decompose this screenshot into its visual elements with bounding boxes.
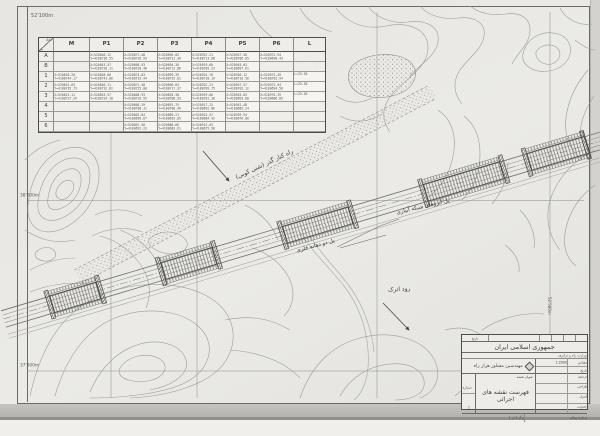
coord-cell: X=520947.58 Y=4180706.05	[226, 52, 260, 62]
stippled-pond	[348, 54, 415, 97]
coord-cell: X=520868.93 Y=4180716.55	[124, 92, 158, 102]
coord-cell: X=520815.65 Y=4180735.73	[54, 82, 90, 92]
grid-label-left-mid: 38'000m	[20, 193, 39, 198]
revision-cell	[551, 335, 563, 341]
coord-cell: X=520866.39 Y=4180708.11	[124, 102, 158, 112]
coord-cell: X=520912.03 Y=4180675.98	[192, 122, 226, 132]
coord-cell	[54, 52, 90, 62]
revision-cell	[563, 335, 575, 341]
sig-value	[536, 374, 567, 383]
coord-cell: X=520972.94 Y=4180694.50	[260, 82, 294, 92]
sig-label: طراحی	[567, 384, 587, 393]
title-block-bottom-row: شماره پیمان برگ 1 از 1	[462, 414, 587, 422]
coord-table-row: AX=520846.12 Y=4180736.55X=520871.48 Y=4…	[39, 52, 325, 62]
coord-table-row: 5X=520863.84 Y=4180699.67X=520889.21 Y=4…	[39, 112, 325, 122]
coord-cell	[260, 112, 294, 122]
coord-row-label: 1	[39, 72, 54, 82]
revision-cell	[575, 335, 587, 341]
signature-grid: ترسیم طراحی کنترل تصویب	[535, 374, 587, 413]
coord-cell: X=520924.76 Y=4180718.19	[192, 72, 226, 82]
grid-label-top-left: 52'100m	[31, 13, 53, 19]
coord-cell: X=520868.93 Y=4180720.48	[124, 62, 158, 72]
coord-row-label: 3	[39, 92, 54, 102]
coord-cell: X=520919.66 Y=4180701.30	[192, 92, 226, 102]
coord-row-label: 5	[39, 112, 54, 122]
sig-label: تصویب	[567, 404, 587, 413]
coord-table-column-header: P5	[226, 38, 260, 52]
river-flow-arrow	[383, 303, 409, 330]
coord-cell: X=520871.48 Y=4180728.93	[124, 52, 158, 62]
sheet-number-value: 1	[462, 394, 475, 413]
coord-cell: X=520871.48 Y=4180725.00	[124, 82, 158, 92]
sheet-note-cell: برگ 1 از 1	[462, 414, 524, 422]
coord-cell: X=520894.30 Y=4180712.86	[158, 62, 192, 72]
coord-table-row: 3X=520813.11 Y=4180727.29X=520843.57 Y=4…	[39, 92, 325, 102]
coord-cell	[294, 112, 325, 122]
sheet-number-label: شماره	[462, 374, 475, 394]
revision-row: تاریخ	[462, 335, 587, 342]
date-value	[536, 367, 567, 374]
coord-cell: X=520891.75 Y=4180700.49	[158, 102, 192, 112]
coord-cell: X=520848.66 Y=4180741.06	[90, 72, 124, 82]
coord-table-header-row: نقطهپلMP1P2P3P4P5P6L	[39, 38, 325, 52]
coord-row-label: 2	[39, 82, 54, 92]
coord-cell	[260, 102, 294, 112]
coord-cell: X=520843.57 Y=4180724.18	[90, 92, 124, 102]
drawing-title: فهرست نقشه های اجرائی	[478, 380, 533, 412]
coord-table-column-header: L	[294, 38, 325, 52]
coord-cell: X=520886.66 Y=4180683.61	[158, 122, 192, 132]
sig-label: کنترل	[567, 394, 587, 403]
coordinate-table: نقطهپلMP1P2P3P4P5P6LAX=520846.12 Y=41807…	[38, 37, 326, 133]
coord-cell	[260, 122, 294, 132]
coord-row-label: A	[39, 52, 54, 62]
coord-cell	[260, 62, 294, 72]
coord-cell: X=520889.21 Y=4180692.05	[158, 112, 192, 122]
coord-table-row: 4X=520866.39 Y=4180708.11X=520891.75 Y=4…	[39, 102, 325, 112]
bypass-arrow	[203, 151, 229, 181]
coord-cell: X=520975.49 Y=4180702.94	[260, 72, 294, 82]
coord-table-corner-cell: نقطهپل	[39, 38, 54, 52]
grid-label-right-vertical: 52'500m	[546, 297, 551, 315]
coord-cell: X=520846.11 Y=4180732.62	[90, 82, 124, 92]
coord-table-column-header: P6	[260, 38, 294, 52]
revision-cell	[539, 335, 551, 341]
coord-cell: L=25.36	[294, 92, 325, 102]
coord-cell: X=520947.57 Y=4180702.12	[226, 82, 260, 92]
drawing-title-label: عنوان نقشه	[503, 375, 533, 378]
title-block: تاریخ جمهوری اسلامی ایران وزارت راه و تر…	[461, 334, 588, 410]
nation-title: جمهوری اسلامی ایران	[462, 342, 587, 353]
coord-table-column-header: P2	[124, 38, 158, 52]
coord-cell: X=520899.39 Y=4180725.81	[158, 72, 192, 82]
coord-row-label: 4	[39, 102, 54, 112]
coord-cell: X=520939.94 Y=4180676.80	[226, 112, 260, 122]
coord-table-row: 6X=520861.30 Y=4180691.23X=520886.66 Y=4…	[39, 122, 325, 132]
coord-cell	[90, 102, 124, 112]
coord-table-column-header: P3	[158, 38, 192, 52]
coord-cell: X=520922.21 Y=4180709.75	[192, 82, 226, 92]
coord-cell: X=520874.03 Y=4180733.44	[124, 72, 158, 82]
scale-label: مقیاس	[567, 359, 587, 366]
river-lines	[300, 232, 374, 400]
coord-cell: X=520919.66 Y=4180705.23	[192, 62, 226, 72]
company-name: مهندسین مشاور هراز راه	[474, 363, 523, 368]
revision-description-cell	[488, 335, 539, 341]
coord-cell	[294, 62, 325, 72]
coord-row-label: 6	[39, 122, 54, 132]
sheet-number-column: شماره 1	[462, 374, 476, 413]
coord-table-row: BX=520843.57 Y=4180728.11X=520868.93 Y=4…	[39, 62, 325, 72]
coord-cell: L=25.36	[294, 82, 325, 92]
coord-cell: X=520818.20 Y=4180744.17	[54, 72, 90, 82]
coord-cell: X=520917.12 Y=4180692.86	[192, 102, 226, 112]
coord-table-row: 1X=520818.20 Y=4180744.17X=520848.66 Y=4…	[39, 72, 325, 82]
coord-cell: X=520914.57 Y=4180684.42	[192, 112, 226, 122]
coord-cell: X=520896.85 Y=4180721.30	[158, 52, 192, 62]
coord-cell: X=520942.48 Y=4180685.24	[226, 102, 260, 112]
coord-table-column-header: P4	[192, 38, 226, 52]
contract-number-cell: شماره پیمان	[524, 414, 587, 422]
coord-cell	[54, 102, 90, 112]
scanned-site-plan-sheet: { "sheet": { "paper_color": "#e9e8e4", "…	[0, 0, 600, 436]
coord-cell: X=520863.84 Y=4180699.67	[124, 112, 158, 122]
coord-cell: X=520843.57 Y=4180728.11	[90, 62, 124, 72]
coord-cell: X=520861.30 Y=4180691.23	[124, 122, 158, 132]
coord-table-column-header: P1	[90, 38, 124, 52]
coord-cell: X=520846.12 Y=4180736.55	[90, 52, 124, 62]
coord-cell: X=520813.11 Y=4180727.29	[54, 92, 90, 102]
coord-cell: X=520972.94 Y=4180698.43	[260, 52, 294, 62]
coord-cell: X=520945.03 Y=4180697.61	[226, 62, 260, 72]
coord-table-row: 2X=520815.65 Y=4180735.73X=520846.11 Y=4…	[39, 82, 325, 92]
date-label: تاریخ	[567, 367, 587, 374]
coord-cell	[54, 122, 90, 132]
sig-value	[536, 394, 567, 403]
bridge-deck-segments	[50, 136, 590, 312]
coord-cell: X=520922.21 Y=4180713.68	[192, 52, 226, 62]
coord-cell: X=520950.12 Y=4180710.56	[226, 72, 260, 82]
grid-label-left-bottom: 37'800m	[20, 363, 39, 368]
coord-cell	[54, 112, 90, 122]
coord-cell: L=25.36	[294, 72, 325, 82]
coord-row-label: B	[39, 62, 54, 72]
coord-cell	[294, 102, 325, 112]
company-logo	[525, 361, 535, 371]
coord-cell: X=520945.03 Y=4180693.68	[226, 92, 260, 102]
coord-cell: X=520970.39 Y=4180686.05	[260, 92, 294, 102]
sig-value	[536, 384, 567, 393]
sig-label: ترسیم	[567, 374, 587, 383]
coord-cell: X=520896.84 Y=4180717.37	[158, 82, 192, 92]
coord-cell	[294, 52, 325, 62]
coord-cell	[90, 112, 124, 122]
revision-date-cell: تاریخ	[462, 335, 488, 341]
coord-cell	[90, 122, 124, 132]
coord-table-column-header: M	[54, 38, 90, 52]
coord-cell: X=520894.30 Y=4180708.93	[158, 92, 192, 102]
coord-cell	[54, 62, 90, 72]
coord-cell	[294, 122, 325, 132]
sig-value	[536, 404, 567, 413]
scale-date-grid: مقیاس 1:2000 تاریخ	[535, 359, 587, 373]
scale-value: 1:2000	[536, 359, 567, 366]
coord-cell	[226, 122, 260, 132]
metal-bridge-leader-line	[340, 235, 386, 248]
